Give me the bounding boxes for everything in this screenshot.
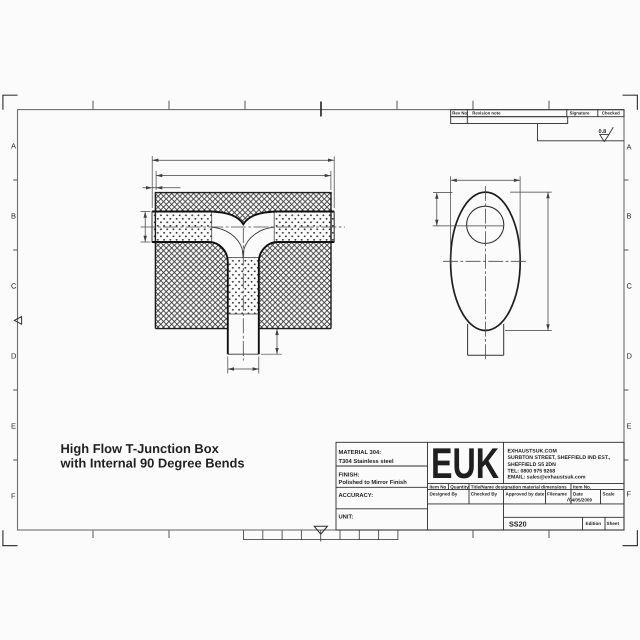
svg-text:Edition: Edition xyxy=(586,521,602,526)
svg-text:F: F xyxy=(627,490,632,499)
svg-text:High Flow T-Junction Box: High Flow T-Junction Box xyxy=(61,441,220,456)
svg-text:Signature: Signature xyxy=(570,111,590,116)
svg-text:SHEFFIELD S5 2DN: SHEFFIELD S5 2DN xyxy=(508,462,557,468)
svg-text:C: C xyxy=(627,282,633,291)
svg-text:Scale: Scale xyxy=(603,491,615,496)
svg-text:Approved by date: Approved by date xyxy=(506,491,545,496)
svg-text:FINISH:: FINISH: xyxy=(339,471,360,478)
svg-text:Filename: Filename xyxy=(547,491,567,496)
svg-text:Quantity: Quantity xyxy=(450,484,469,489)
svg-text:D: D xyxy=(11,352,17,361)
svg-text:Checked By: Checked By xyxy=(471,491,498,496)
svg-text:EMAIL: sales@exhaustsuk.com: EMAIL: sales@exhaustsuk.com xyxy=(508,475,586,481)
svg-text:EXHAUSTSUK.COM: EXHAUSTSUK.COM xyxy=(508,449,557,455)
svg-text:ACCURACY:: ACCURACY: xyxy=(339,492,374,499)
svg-text:with Internal 90 Degree Bends: with Internal 90 Degree Bends xyxy=(60,455,245,470)
svg-text:Title/Name designation materia: Title/Name designation material dimensio… xyxy=(471,484,567,489)
svg-text:Date: Date xyxy=(573,491,583,496)
svg-text:UNIT:: UNIT: xyxy=(339,515,354,521)
svg-text:A: A xyxy=(11,142,16,151)
svg-text:E: E xyxy=(627,422,632,431)
svg-text:TEL: 0800 975 9268: TEL: 0800 975 9268 xyxy=(508,468,556,474)
svg-text:B: B xyxy=(627,212,632,221)
svg-text:Item No.: Item No. xyxy=(573,484,591,489)
svg-text:B: B xyxy=(11,212,16,221)
svg-text:Item No: Item No xyxy=(430,484,447,489)
svg-text:T304 Stainless steel: T304 Stainless steel xyxy=(339,458,394,465)
svg-text:D: D xyxy=(627,352,633,361)
svg-text:A: A xyxy=(627,143,632,152)
svg-text:Rev No:: Rev No: xyxy=(452,111,469,116)
svg-text:Checked: Checked xyxy=(602,111,620,116)
svg-text:MATERIAL 304:: MATERIAL 304: xyxy=(339,449,382,456)
svg-text:04/05/2009: 04/05/2009 xyxy=(569,497,592,502)
svg-text:SURBTON STREET, SHEFFIELD IND: SURBTON STREET, SHEFFIELD IND EST., xyxy=(508,455,611,461)
svg-text:E: E xyxy=(11,422,16,431)
svg-text:F: F xyxy=(11,492,16,501)
svg-text:Revision note: Revision note xyxy=(472,111,501,116)
svg-text:Sheet: Sheet xyxy=(607,521,620,526)
svg-text:C: C xyxy=(11,282,17,291)
svg-text:EUK: EUK xyxy=(431,440,499,488)
svg-text:Designed By: Designed By xyxy=(430,491,458,496)
svg-text:Polished to Mirror Finish: Polished to Mirror Finish xyxy=(339,479,408,486)
svg-text:SS20: SS20 xyxy=(509,519,527,528)
